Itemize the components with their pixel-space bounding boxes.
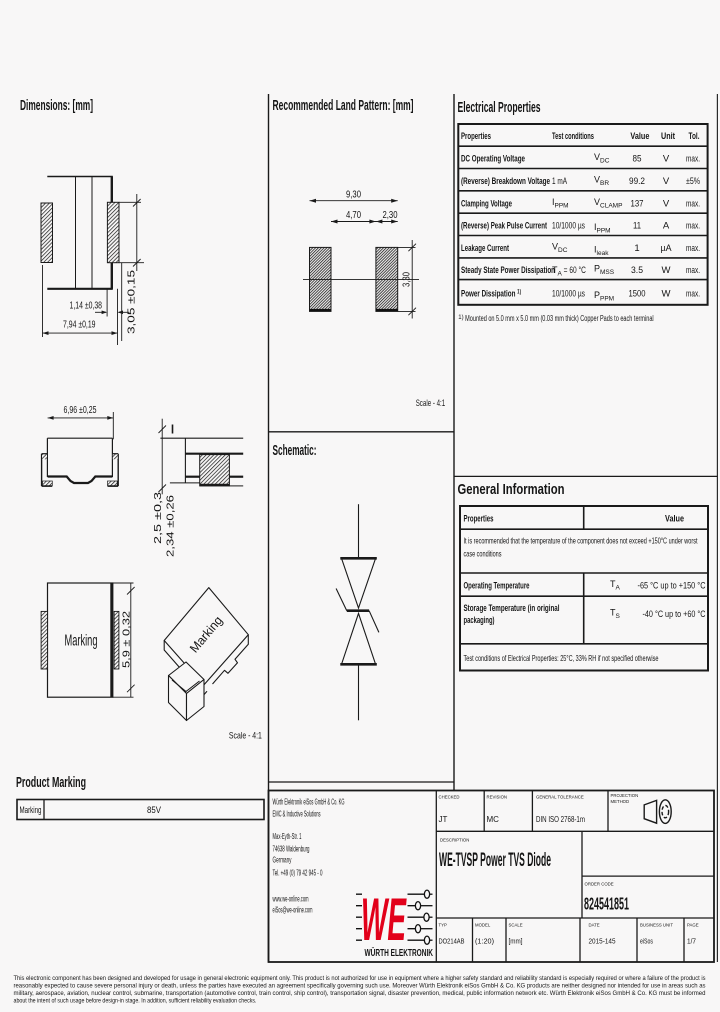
svg-text:1 mA: 1 mA bbox=[552, 176, 567, 187]
svg-text:Storage Temperature (in origin: Storage Temperature (in original bbox=[464, 603, 560, 614]
svg-text:max.: max. bbox=[686, 199, 700, 210]
svg-text:CHECKED: CHECKED bbox=[439, 795, 460, 800]
svg-text:Power Dissipation 1): Power Dissipation 1) bbox=[461, 289, 521, 300]
svg-text:10/1000 µs: 10/1000 µs bbox=[552, 289, 585, 300]
svg-text:Schematic:: Schematic: bbox=[273, 443, 317, 459]
svg-text:Dimensions: [mm]: Dimensions: [mm] bbox=[20, 98, 93, 114]
svg-text:11: 11 bbox=[633, 221, 641, 232]
svg-text:Steady State Power Dissipation: Steady State Power Dissipation bbox=[461, 265, 555, 276]
svg-text:-40 °C up to +60 °C: -40 °C up to +60 °C bbox=[643, 609, 706, 619]
svg-text:packaging): packaging) bbox=[464, 615, 495, 626]
svg-text:Leakage Current: Leakage Current bbox=[461, 243, 510, 254]
svg-text:Marking: Marking bbox=[20, 805, 42, 815]
svg-text:-65 °C up to +150 °C: -65 °C up to +150 °C bbox=[638, 581, 706, 591]
svg-text:±5%: ±5% bbox=[686, 176, 700, 187]
svg-text:3,05 ±0,15: 3,05 ±0,15 bbox=[126, 270, 138, 334]
svg-text:1/7: 1/7 bbox=[687, 937, 696, 946]
svg-text:max.: max. bbox=[686, 289, 700, 300]
svg-text:(Reverse) Breakdown Voltage: (Reverse) Breakdown Voltage bbox=[461, 176, 550, 187]
svg-text:3.5: 3.5 bbox=[631, 265, 643, 276]
svg-text:99.2: 99.2 bbox=[629, 176, 645, 187]
svg-text:85: 85 bbox=[633, 154, 642, 165]
svg-text:DO214AB: DO214AB bbox=[439, 937, 465, 946]
svg-text:Tel. +49 (0) 79 42 945 - 0: Tel. +49 (0) 79 42 945 - 0 bbox=[273, 869, 323, 878]
svg-text:V: V bbox=[663, 154, 670, 165]
svg-text:about the intent of such usage: about the intent of such usage before de… bbox=[14, 999, 257, 1005]
svg-text:ORDER CODE: ORDER CODE bbox=[585, 882, 614, 887]
svg-text:www.we-online.com: www.we-online.com bbox=[272, 895, 309, 904]
svg-text:TYP: TYP bbox=[439, 923, 447, 928]
svg-text:Test conditions: Test conditions bbox=[552, 131, 594, 142]
svg-text:Value: Value bbox=[665, 514, 684, 525]
svg-text:Marking: Marking bbox=[65, 633, 98, 650]
svg-text:max.: max. bbox=[686, 154, 700, 165]
svg-text:Germany: Germany bbox=[273, 856, 292, 865]
svg-text:V: V bbox=[663, 176, 670, 187]
svg-text:1) Mounted on 5.0 mm x 5.0 mm: 1) Mounted on 5.0 mm x 5.0 mm (0.03 mm t… bbox=[458, 314, 653, 323]
svg-text:WE-TVSP Power TVS Diode: WE-TVSP Power TVS Diode bbox=[439, 849, 551, 871]
svg-text:EMC & Inductive Solutions: EMC & Inductive Solutions bbox=[273, 810, 321, 819]
svg-text:1,14 ±0,38: 1,14 ±0,38 bbox=[70, 301, 103, 312]
svg-text:Electrical Properties: Electrical Properties bbox=[458, 99, 541, 116]
svg-text:It is recommended that the tem: It is recommended that the temperature o… bbox=[464, 536, 698, 546]
svg-text:6,96 ±0,25: 6,96 ±0,25 bbox=[64, 405, 97, 416]
svg-text:MC: MC bbox=[487, 815, 500, 824]
svg-text:DC Operating Voltage: DC Operating Voltage bbox=[461, 154, 525, 165]
svg-text:4,70: 4,70 bbox=[346, 210, 361, 221]
svg-text:W: W bbox=[662, 289, 671, 300]
svg-text:2015-145: 2015-145 bbox=[589, 937, 616, 946]
svg-text:MODEL: MODEL bbox=[475, 923, 491, 928]
svg-text:Product Marking: Product Marking bbox=[16, 775, 86, 791]
svg-text:PROJECTION: PROJECTION bbox=[611, 793, 639, 798]
svg-text:DATE: DATE bbox=[589, 923, 600, 928]
svg-text:eiSos@we-online.com: eiSos@we-online.com bbox=[273, 906, 313, 915]
svg-text:9,30: 9,30 bbox=[346, 190, 361, 201]
svg-text:3,30: 3,30 bbox=[402, 272, 413, 287]
svg-text:74638 Waldenburg: 74638 Waldenburg bbox=[273, 845, 310, 854]
svg-text:7,94 ±0,19: 7,94 ±0,19 bbox=[63, 320, 96, 331]
svg-text:max.: max. bbox=[686, 265, 700, 276]
svg-text:Properties: Properties bbox=[461, 131, 491, 142]
svg-text:Test conditions of Electrical: Test conditions of Electrical Properties… bbox=[464, 653, 659, 663]
svg-text:WE: WE bbox=[361, 886, 407, 953]
svg-text:V: V bbox=[663, 199, 670, 210]
svg-text:Würth Elektronik eiSos GmbH &: Würth Elektronik eiSos GmbH & Co. KG bbox=[273, 798, 345, 807]
svg-text:1500: 1500 bbox=[629, 289, 646, 300]
svg-text:137: 137 bbox=[631, 199, 644, 210]
svg-text:Operating Temperature: Operating Temperature bbox=[464, 581, 530, 592]
svg-text:reasonably expected to cause s: reasonably expected to cause severe pers… bbox=[14, 984, 706, 990]
svg-text:SCALE: SCALE bbox=[509, 923, 523, 928]
svg-text:Max-Eyth-Str. 1: Max-Eyth-Str. 1 bbox=[273, 832, 302, 841]
svg-text:DIN ISO 2768-1m: DIN ISO 2768-1m bbox=[536, 815, 585, 824]
svg-text:eiSos: eiSos bbox=[640, 937, 653, 946]
svg-text:2,5 ±0,3: 2,5 ±0,3 bbox=[153, 491, 164, 544]
svg-text:General Information: General Information bbox=[458, 481, 565, 498]
svg-text:This electronic component has: This electronic component has been desig… bbox=[14, 976, 706, 982]
svg-text:(Reverse) Peak Pulse Current: (Reverse) Peak Pulse Current bbox=[461, 221, 548, 232]
svg-text:BUSINESS UNIT: BUSINESS UNIT bbox=[640, 923, 673, 928]
svg-text:824541851: 824541851 bbox=[584, 894, 629, 914]
svg-text:Unit: Unit bbox=[661, 131, 676, 142]
svg-text:Value: Value bbox=[630, 131, 649, 142]
svg-text:2,34 ±0,26: 2,34 ±0,26 bbox=[166, 494, 177, 557]
svg-text:1: 1 bbox=[634, 243, 639, 254]
svg-text:military, aerospace, aviation,: military, aerospace, aviation, nuclear c… bbox=[14, 991, 706, 997]
svg-text:(1:20): (1:20) bbox=[475, 937, 494, 946]
svg-text:W: W bbox=[662, 265, 671, 276]
svg-text:WÜRTH ELEKTRONIK: WÜRTH ELEKTRONIK bbox=[365, 946, 434, 959]
svg-text:max.: max. bbox=[686, 221, 700, 232]
svg-text:µA: µA bbox=[661, 243, 673, 254]
svg-text:Clamping Voltage: Clamping Voltage bbox=[461, 199, 512, 210]
svg-text:10/1000 µs: 10/1000 µs bbox=[552, 221, 585, 232]
svg-text:Scale - 4:1: Scale - 4:1 bbox=[229, 731, 262, 742]
svg-text:Scale - 4:1: Scale - 4:1 bbox=[416, 398, 446, 409]
svg-text:REVISION: REVISION bbox=[487, 795, 508, 800]
svg-text:[mm]: [mm] bbox=[509, 937, 523, 946]
svg-text:max.: max. bbox=[686, 243, 700, 254]
svg-text:GENERAL TOLERANCE: GENERAL TOLERANCE bbox=[536, 795, 584, 800]
svg-text:DESCRIPTION: DESCRIPTION bbox=[440, 838, 469, 843]
svg-text:2,30: 2,30 bbox=[383, 210, 398, 221]
svg-text:Recommended Land Pattern: [mm]: Recommended Land Pattern: [mm] bbox=[273, 98, 414, 114]
svg-text:A: A bbox=[663, 221, 670, 232]
svg-text:Tol.: Tol. bbox=[689, 131, 700, 142]
svg-text:Properties: Properties bbox=[464, 514, 494, 525]
svg-text:JT: JT bbox=[439, 815, 448, 824]
svg-text:85V: 85V bbox=[147, 805, 161, 815]
svg-text:5,9 ± 0,32: 5,9 ± 0,32 bbox=[122, 610, 133, 668]
svg-text:PAGE: PAGE bbox=[687, 923, 699, 928]
svg-text:METHOD: METHOD bbox=[611, 799, 630, 804]
svg-text:case conditions: case conditions bbox=[464, 549, 502, 559]
